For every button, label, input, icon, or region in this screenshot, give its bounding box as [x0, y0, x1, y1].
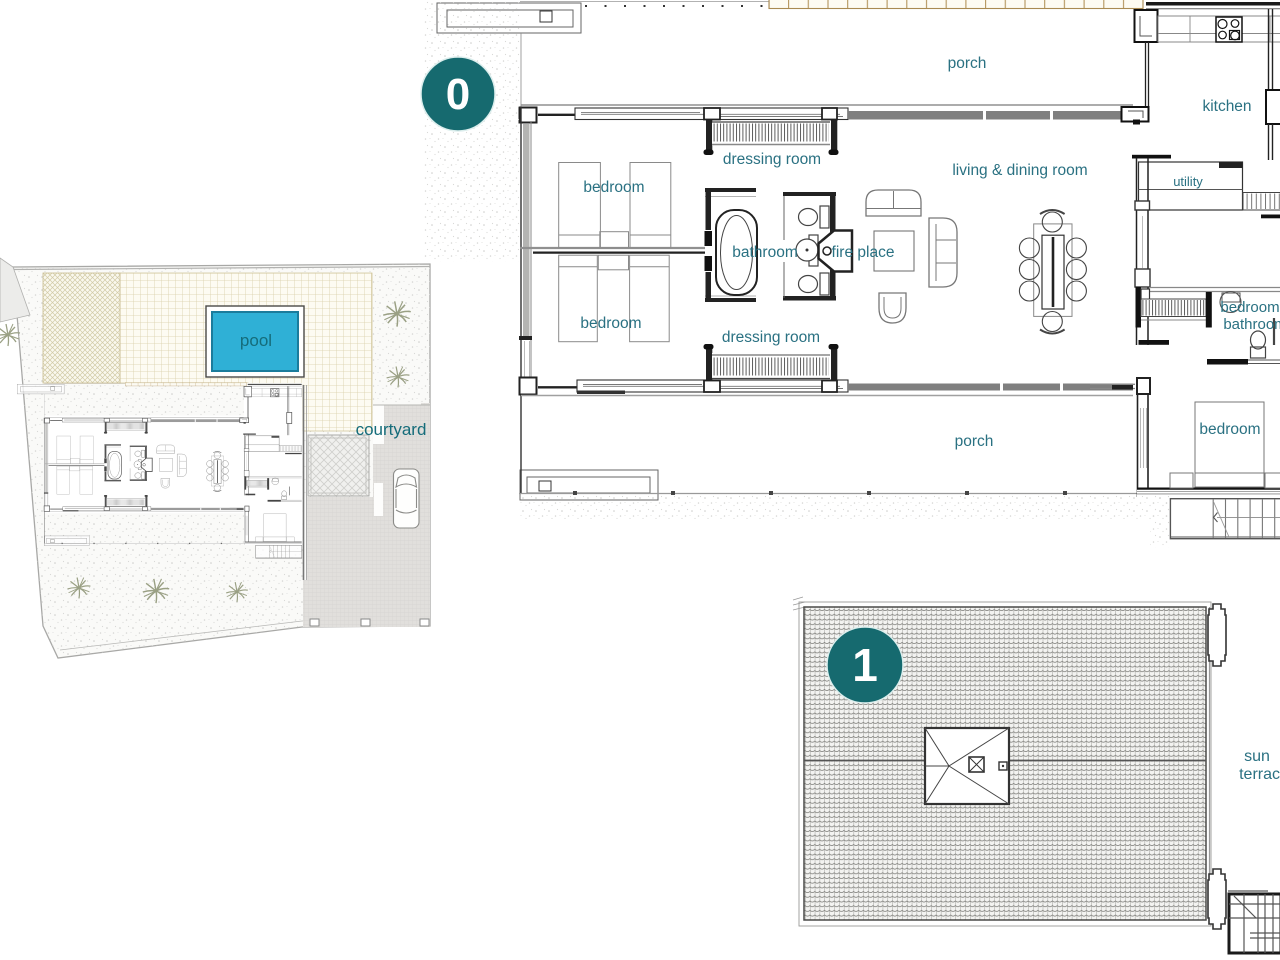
svg-text:porch: porch [955, 433, 994, 450]
svg-text:sun: sun [1244, 748, 1270, 765]
svg-text:courtyard: courtyard [356, 420, 427, 439]
svg-text:utility: utility [1173, 174, 1203, 189]
svg-text:kitchen: kitchen [1202, 98, 1251, 115]
svg-text:bedroom: bedroom [583, 179, 644, 196]
svg-text:bedroom: bedroom [1199, 421, 1260, 438]
svg-text:terrace: terrace [1239, 766, 1280, 783]
svg-text:porch: porch [948, 55, 987, 72]
svg-text:fire place: fire place [832, 244, 895, 261]
svg-text:bathroom: bathroom [732, 244, 797, 261]
svg-text:1: 1 [852, 639, 878, 691]
svg-text:pool: pool [240, 331, 272, 350]
svg-text:dressing room: dressing room [722, 329, 820, 346]
svg-text:living & dining room: living & dining room [952, 162, 1087, 179]
svg-text:bedroom: bedroom [580, 315, 641, 332]
svg-text:0: 0 [446, 70, 470, 119]
svg-text:dressing room: dressing room [723, 151, 821, 168]
svg-text:bathroom: bathroom [1223, 316, 1280, 333]
svg-text:bedroom: bedroom [1220, 299, 1279, 316]
